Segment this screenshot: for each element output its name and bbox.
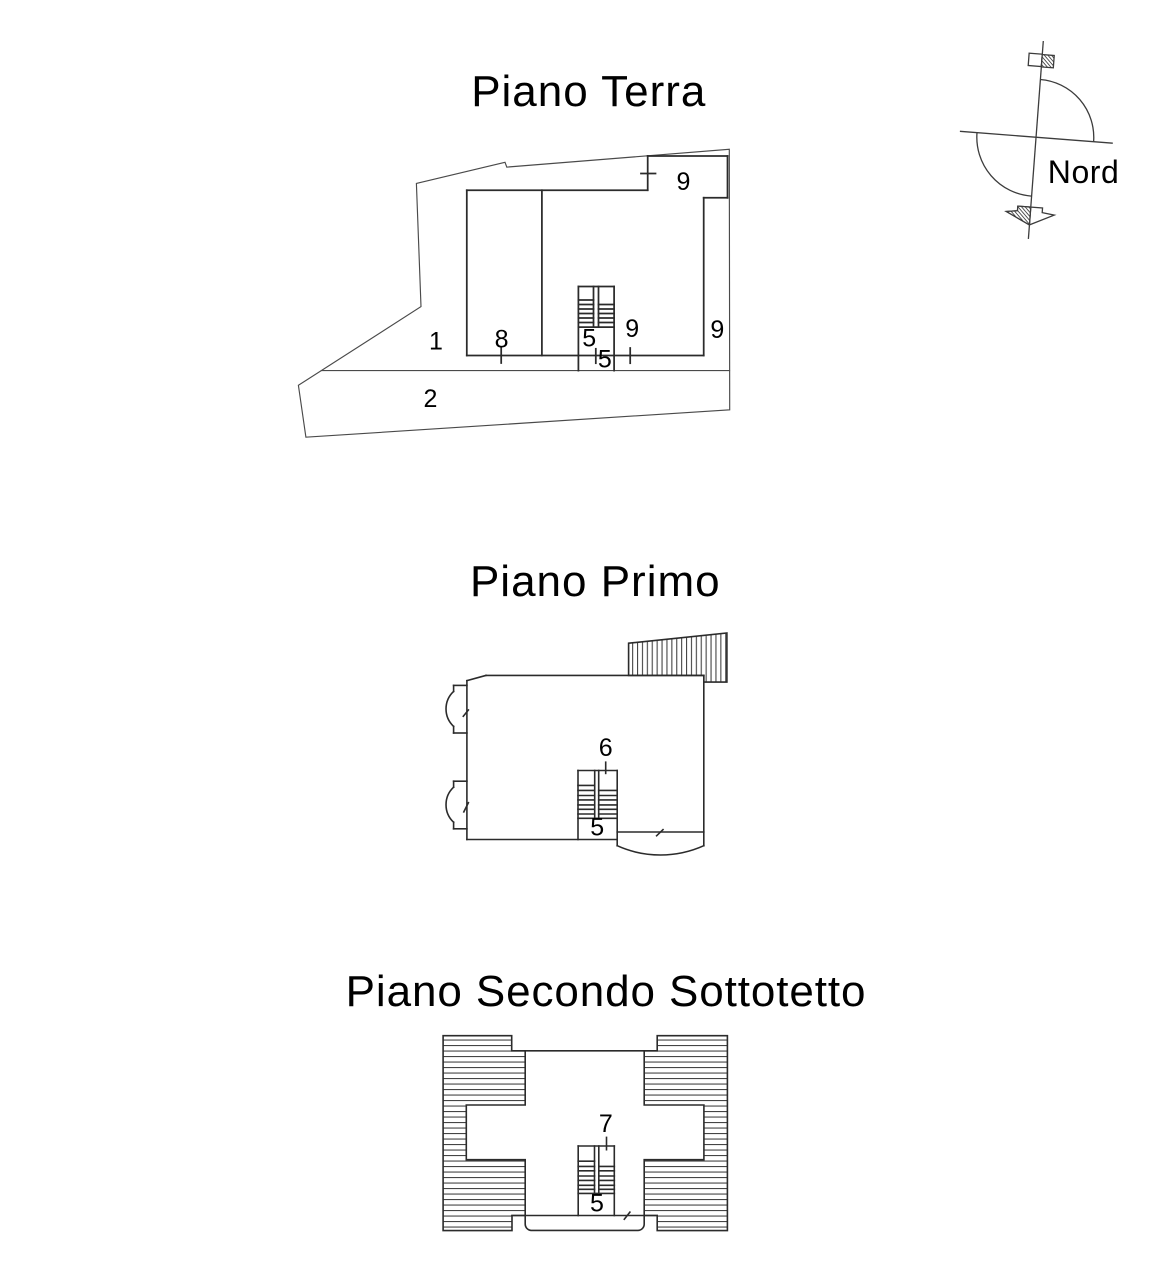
svg-text:Nord: Nord: [1048, 154, 1120, 190]
svg-text:1: 1: [429, 327, 443, 355]
svg-text:Piano Secondo Sottotetto: Piano Secondo Sottotetto: [346, 967, 867, 1016]
svg-text:8: 8: [495, 325, 509, 353]
svg-text:9: 9: [625, 315, 639, 343]
svg-text:5: 5: [590, 1190, 604, 1218]
svg-text:5: 5: [582, 324, 596, 352]
svg-text:5: 5: [590, 813, 604, 841]
svg-text:7: 7: [599, 1110, 613, 1138]
svg-text:6: 6: [599, 734, 613, 762]
svg-text:Piano Primo: Piano Primo: [470, 557, 721, 606]
svg-text:9: 9: [677, 168, 691, 196]
svg-text:9: 9: [710, 316, 724, 344]
svg-text:Piano Terra: Piano Terra: [471, 67, 706, 116]
svg-text:5: 5: [598, 346, 612, 374]
svg-text:2: 2: [424, 385, 438, 413]
